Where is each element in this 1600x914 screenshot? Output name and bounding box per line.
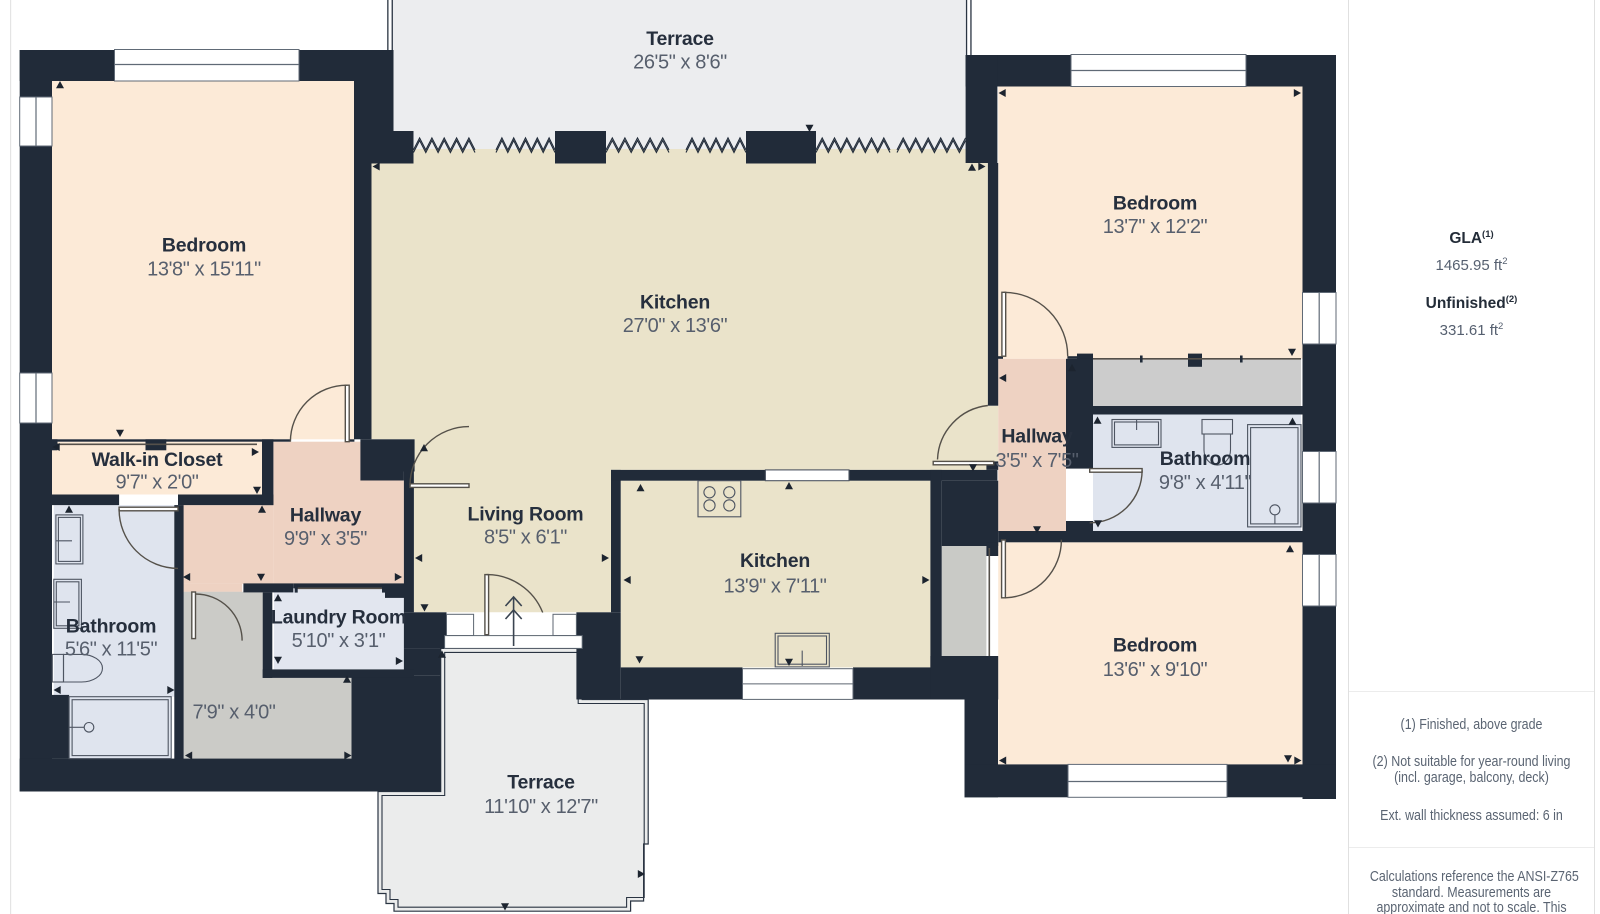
svg-text:Bedroom: Bedroom [162, 235, 246, 257]
svg-text:Living Room: Living Room [468, 504, 584, 526]
svg-text:Laundry Room: Laundry Room [271, 607, 406, 629]
svg-text:9'7" x 2'0": 9'7" x 2'0" [115, 472, 198, 494]
svg-text:9'8" x 4'11": 9'8" x 4'11" [1159, 472, 1252, 494]
svg-text:7'9" x 4'0": 7'9" x 4'0" [192, 702, 275, 724]
svg-text:27'0" x 13'6": 27'0" x 13'6" [623, 315, 728, 337]
svg-text:13'8" x 15'11": 13'8" x 15'11" [147, 259, 261, 281]
svg-text:3'5" x 7'5": 3'5" x 7'5" [995, 450, 1078, 472]
svg-text:13'6" x 9'10": 13'6" x 9'10" [1103, 659, 1208, 681]
svg-text:Hallway: Hallway [290, 505, 362, 527]
svg-text:13'9" x 7'11": 13'9" x 7'11" [723, 576, 826, 598]
svg-text:8'5" x 6'1": 8'5" x 6'1" [484, 527, 567, 549]
svg-text:Walk-in Closet: Walk-in Closet [92, 449, 224, 471]
svg-text:Bedroom: Bedroom [1113, 635, 1197, 657]
svg-text:Terrace: Terrace [507, 772, 575, 794]
svg-text:Kitchen: Kitchen [640, 292, 710, 314]
svg-text:5'10" x 3'1": 5'10" x 3'1" [292, 630, 386, 652]
svg-text:5'6" x 11'5": 5'6" x 11'5" [65, 639, 158, 661]
svg-text:Bathroom: Bathroom [66, 616, 156, 638]
svg-text:Hallway: Hallway [1001, 426, 1073, 448]
svg-text:13'7" x 12'2": 13'7" x 12'2" [1103, 216, 1208, 238]
svg-text:Terrace: Terrace [646, 28, 714, 50]
svg-text:Kitchen: Kitchen [740, 550, 810, 572]
svg-text:Bedroom: Bedroom [1113, 193, 1197, 215]
svg-text:26'5" x 8'6": 26'5" x 8'6" [633, 52, 727, 74]
svg-text:11'10" x 12'7": 11'10" x 12'7" [484, 796, 598, 818]
svg-text:Bathroom: Bathroom [1160, 448, 1250, 470]
svg-text:9'9" x 3'5": 9'9" x 3'5" [284, 528, 367, 550]
